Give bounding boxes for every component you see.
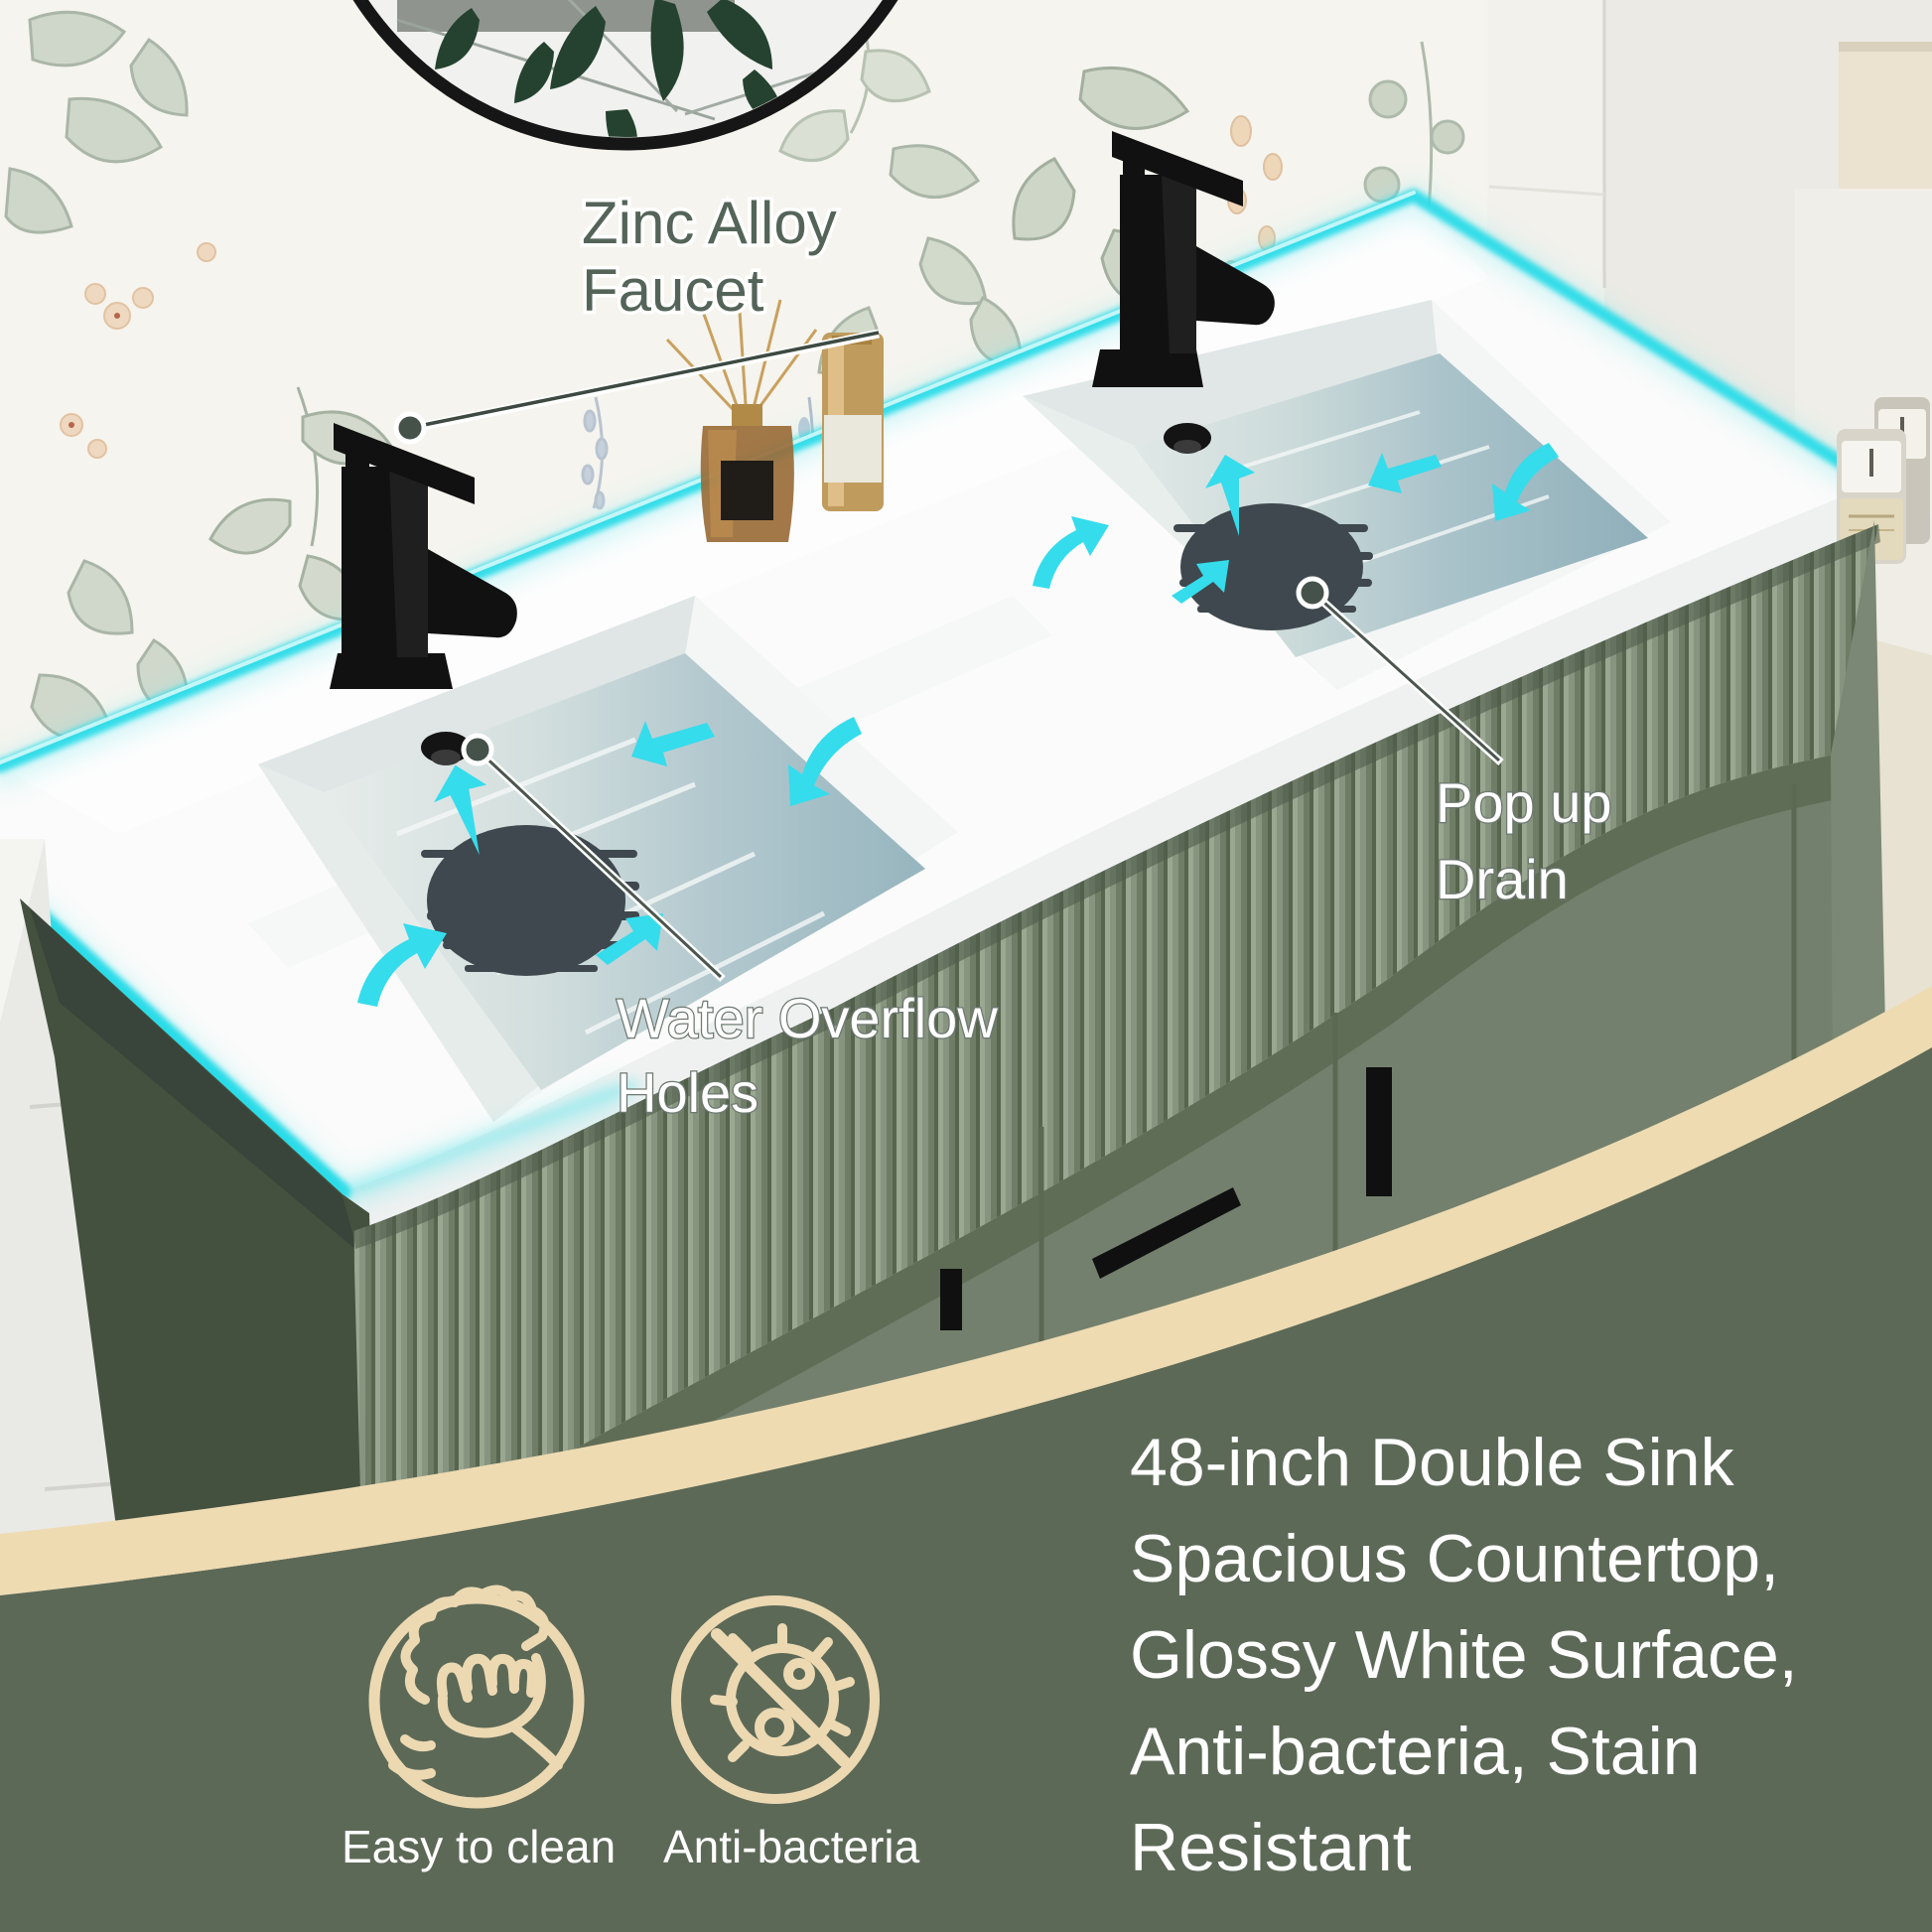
svg-text:Zinc Alloy: Zinc Alloy xyxy=(582,190,837,256)
svg-text:Pop up: Pop up xyxy=(1436,771,1612,834)
svg-text:Easy to clean: Easy to clean xyxy=(342,1821,616,1872)
svg-text:Water Overflow: Water Overflow xyxy=(617,987,998,1049)
svg-text:Glossy White Surface,: Glossy White Surface, xyxy=(1130,1617,1798,1693)
svg-text:Spacious Countertop,: Spacious Countertop, xyxy=(1130,1521,1779,1596)
svg-text:Anti-bacteria: Anti-bacteria xyxy=(663,1821,920,1872)
svg-text:Holes: Holes xyxy=(617,1061,759,1124)
svg-text:48-inch Double Sink: 48-inch Double Sink xyxy=(1130,1425,1735,1500)
svg-text:Resistant: Resistant xyxy=(1130,1810,1412,1885)
svg-text:Faucet: Faucet xyxy=(582,257,764,324)
svg-text:Drain: Drain xyxy=(1436,848,1569,910)
svg-text:Anti-bacteria, Stain: Anti-bacteria, Stain xyxy=(1130,1714,1701,1789)
